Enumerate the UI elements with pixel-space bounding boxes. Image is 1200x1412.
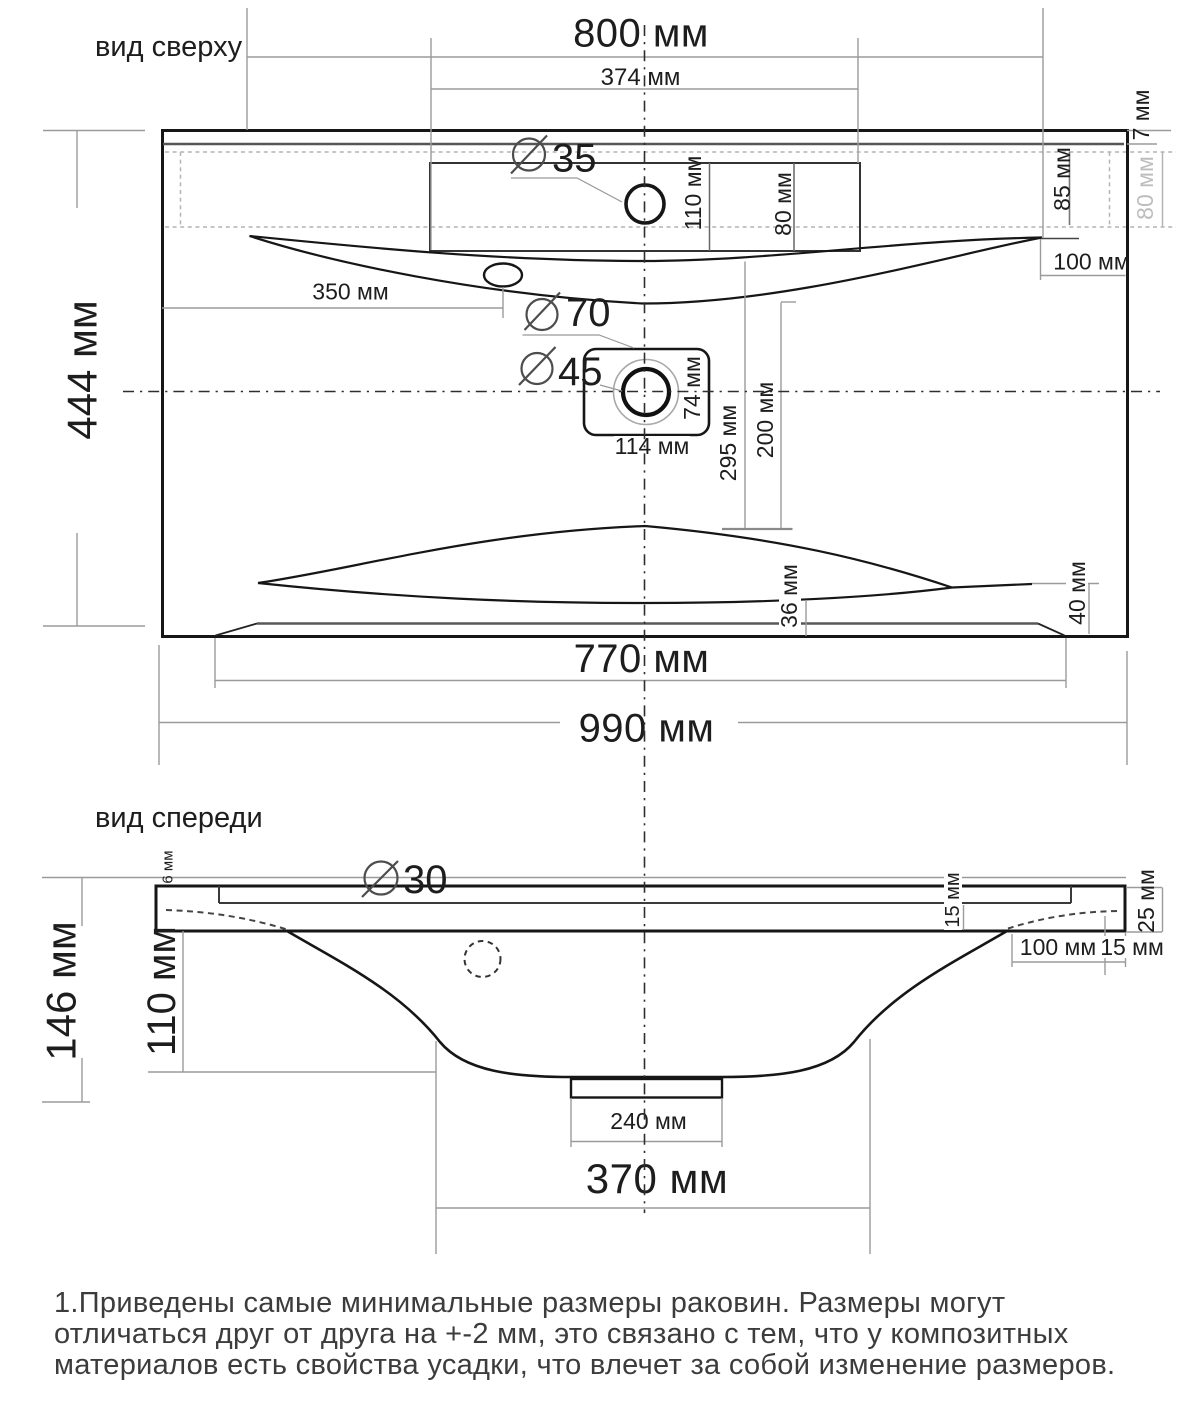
svg-text:вид спереди: вид спереди [95, 802, 263, 834]
svg-text:990 мм: 990 мм [579, 707, 715, 751]
svg-text:110 мм: 110 мм [680, 156, 706, 231]
svg-text:110 мм: 110 мм [140, 926, 184, 1056]
svg-text:отличаться друг от друга на +-: отличаться друг от друга на +-2 мм, это … [54, 1318, 1069, 1350]
svg-text:800 мм: 800 мм [573, 12, 709, 56]
svg-text:материалов есть свойства усадк: материалов есть свойства усадки, что вле… [54, 1349, 1115, 1381]
svg-text:7 мм: 7 мм [1128, 90, 1154, 141]
svg-text:25 мм: 25 мм [1133, 869, 1159, 933]
svg-text:6 мм: 6 мм [160, 850, 177, 883]
svg-text:100 мм: 100 мм [1020, 934, 1096, 960]
svg-text:370 мм: 370 мм [586, 1155, 729, 1202]
svg-text:444 мм: 444 мм [59, 300, 106, 440]
svg-text:295 мм: 295 мм [715, 405, 741, 481]
svg-text:40 мм: 40 мм [1064, 561, 1090, 625]
svg-text:770 мм: 770 мм [574, 637, 710, 681]
svg-text:вид сверху: вид сверху [95, 31, 243, 63]
svg-text:114 мм: 114 мм [615, 433, 690, 459]
svg-text:146 мм: 146 мм [38, 921, 85, 1061]
svg-text:200 мм: 200 мм [752, 382, 778, 458]
svg-text:45: 45 [558, 350, 603, 394]
svg-text:15 мм: 15 мм [1100, 934, 1164, 960]
svg-text:80 мм: 80 мм [1132, 156, 1158, 220]
svg-text:35: 35 [552, 137, 597, 181]
svg-text:36 мм: 36 мм [776, 564, 802, 628]
svg-text:15 мм: 15 мм [942, 872, 964, 927]
svg-text:1.Приведены самые минимальные: 1.Приведены самые минимальные размеры ра… [54, 1287, 1005, 1319]
svg-text:74 мм: 74 мм [679, 356, 705, 420]
svg-text:85 мм: 85 мм [1049, 147, 1075, 211]
svg-text:30: 30 [403, 858, 448, 902]
svg-text:350 мм: 350 мм [312, 279, 388, 305]
svg-text:240 мм: 240 мм [610, 1108, 686, 1134]
svg-text:70: 70 [566, 291, 611, 335]
svg-text:80 мм: 80 мм [770, 172, 796, 236]
svg-text:374 мм: 374 мм [601, 64, 681, 91]
svg-text:100 мм: 100 мм [1053, 249, 1129, 275]
